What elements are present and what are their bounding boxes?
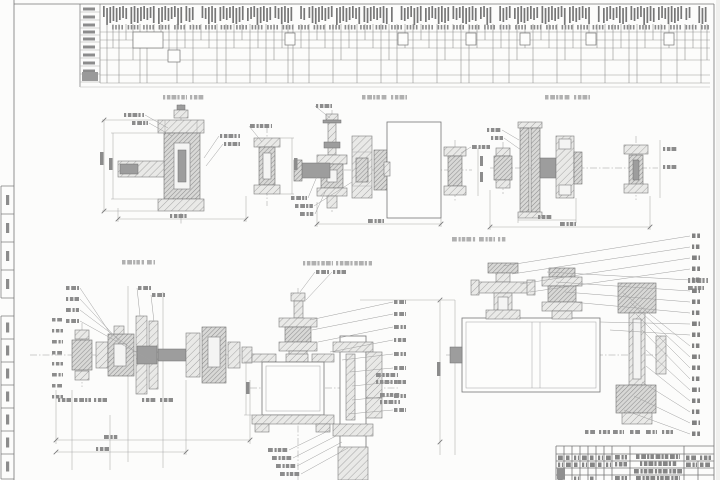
title-block-cell-text: [624, 462, 628, 467]
view-title-text: [199, 95, 204, 100]
micro-text-column: [518, 25, 520, 30]
micro-text-column: [106, 8, 108, 25]
micro-text-column: [410, 6, 412, 17]
micro-text-column: [252, 25, 254, 30]
annotation-text: [52, 340, 57, 344]
micro-text-column: [345, 25, 347, 30]
position-number: [697, 267, 700, 272]
micro-text-column: [214, 8, 216, 23]
callout-label: [310, 212, 314, 216]
micro-text-column: [441, 25, 443, 30]
callout-label: [404, 394, 406, 398]
micro-text-column: [143, 25, 145, 30]
annotation-text: [389, 400, 394, 404]
micro-text-column: [534, 25, 536, 30]
annotation-text: [52, 373, 57, 377]
title-block-cell-text: [558, 463, 560, 468]
page-edge: [716, 0, 720, 480]
view-title-text: [405, 95, 407, 100]
micro-text-column: [670, 25, 672, 30]
annotation-text: [142, 398, 144, 402]
position-number: [692, 366, 696, 371]
callout-label: [238, 142, 240, 146]
title-block-stamp-cell: [557, 469, 565, 480]
position-number: [692, 410, 694, 415]
callout-label: [330, 104, 332, 108]
annotation-text: [538, 215, 540, 219]
micro-text-column: [320, 25, 322, 30]
annotation-text: [542, 215, 546, 219]
view-title-text: [466, 237, 471, 242]
callout-label: [75, 297, 80, 301]
callout-label: [325, 104, 330, 108]
annotation-text: [380, 400, 382, 404]
micro-text-column: [116, 8, 118, 22]
view-title-text: [186, 95, 187, 100]
timing-node-box: [285, 33, 295, 45]
timing-node-box: [133, 32, 163, 48]
position-number: [699, 289, 701, 294]
title-block-cell-text: [602, 456, 603, 461]
micro-text-column: [134, 6, 136, 22]
position-number: [692, 311, 694, 316]
view-title-text: [336, 261, 338, 266]
title-block-cell-text: [636, 455, 640, 460]
micro-text-column: [668, 7, 670, 24]
micro-text-column: [354, 25, 356, 30]
view-title-text: [190, 95, 192, 100]
position-number: [699, 256, 701, 261]
micro-text-column: [226, 8, 228, 20]
callout-label: [401, 352, 403, 356]
micro-text-column: [278, 8, 280, 19]
title-block-cell-text: [625, 476, 627, 480]
micro-text-column: [462, 6, 464, 23]
title-block-cell-text: [641, 469, 643, 474]
micro-text-column: [401, 6, 403, 20]
annotation-text: [630, 430, 634, 434]
position-number: [692, 278, 694, 283]
micro-text-column: [506, 7, 508, 20]
micro-text-column: [342, 6, 344, 21]
micro-text-column: [577, 25, 579, 30]
micro-text-column: [586, 25, 588, 30]
margin-box-text: [6, 195, 9, 205]
micro-text-column: [422, 25, 424, 30]
title-block-cell-text: [615, 455, 620, 460]
micro-text-column: [515, 25, 517, 30]
gearbox-housing: [462, 318, 600, 392]
annotation-text: [100, 447, 104, 451]
micro-text-column: [705, 7, 707, 22]
title-block-cell-text: [610, 463, 611, 468]
view-title-text: [578, 95, 582, 100]
callout-label: [495, 136, 499, 140]
annotation-text: [179, 214, 184, 218]
micro-text-column: [545, 8, 547, 24]
annotation-text: [151, 398, 156, 402]
title-block-cell-text: [669, 462, 671, 467]
annotation-text: [574, 222, 576, 226]
micro-text-column: [475, 25, 477, 30]
position-number: [699, 388, 701, 393]
micro-text-column: [186, 6, 188, 21]
micro-text-column: [162, 25, 164, 30]
micro-text-column: [205, 8, 207, 19]
micro-text-column: [103, 6, 105, 17]
annotation-text: [599, 430, 601, 434]
annotation-text: [56, 329, 60, 333]
micro-text-column: [517, 7, 519, 24]
micro-text-column: [370, 7, 372, 21]
title-block-cell-text: [644, 469, 648, 474]
annotation-text: [88, 398, 91, 402]
annotation-text: [635, 430, 640, 434]
title-block-cell-text: [669, 469, 671, 474]
callout-label: [66, 297, 68, 301]
micro-text-column: [661, 6, 663, 18]
title-block-cell-text: [606, 456, 611, 461]
view-title-text: [459, 237, 461, 242]
micro-text-column: [658, 7, 660, 20]
position-number: [692, 256, 697, 261]
micro-text-column: [224, 25, 226, 30]
callout-label: [405, 366, 406, 370]
view-title-text: [317, 261, 319, 266]
micro-text-column: [530, 6, 532, 19]
micro-text-column: [355, 8, 357, 19]
micro-text-column: [702, 8, 704, 24]
annotation-text: [386, 373, 390, 377]
view-title-text: [462, 237, 466, 242]
micro-text-column: [385, 25, 387, 30]
micro-text-column: [404, 8, 406, 21]
position-number: [699, 355, 701, 360]
left-coupling: [72, 323, 92, 387]
micro-text-column: [214, 25, 216, 30]
micro-text-column: [147, 8, 149, 20]
callout-label: [76, 308, 79, 312]
title-block-cell-text: [693, 463, 695, 468]
micro-text-column: [335, 25, 337, 30]
micro-text-column: [602, 25, 604, 30]
callout-label: [157, 293, 162, 297]
title-block-cell-text: [578, 477, 579, 480]
micro-text-column: [230, 25, 232, 30]
title-block-cell-text: [686, 463, 691, 468]
annotation-text: [653, 430, 655, 434]
callout-label: [71, 319, 76, 323]
title-block-cell-text: [705, 463, 710, 468]
annotation-text: [52, 395, 54, 399]
callout-label: [290, 472, 294, 476]
micro-text-column: [598, 6, 600, 22]
micro-text-column: [284, 6, 286, 22]
micro-text-column: [575, 8, 577, 22]
title-block-cell-text: [696, 463, 697, 468]
position-number: [696, 245, 700, 250]
view-title-text: [172, 95, 177, 100]
callout-label: [405, 408, 406, 412]
title-block-cell-text: [625, 455, 627, 460]
position-number: [697, 399, 700, 404]
callout-label: [66, 286, 70, 290]
annotation-text: [98, 398, 102, 402]
micro-text-column: [617, 25, 619, 30]
micro-text-column: [599, 25, 601, 30]
annotation-text: [111, 435, 113, 439]
view-title-text: [479, 237, 484, 242]
micro-text-column: [453, 25, 455, 30]
title-block-cell-text: [646, 476, 650, 480]
row-label-text: [83, 31, 95, 34]
micro-text-column: [276, 25, 278, 30]
annotation-text: [646, 430, 651, 434]
callout-label: [142, 113, 144, 117]
title-block-cell-text: [649, 462, 654, 467]
title-block-cell-text: [654, 462, 656, 467]
annotation-text: [79, 398, 84, 402]
micro-text-column: [159, 25, 161, 30]
micro-text-column: [407, 25, 409, 30]
callout-label: [280, 472, 285, 476]
callout-label: [404, 325, 406, 329]
callout-label: [306, 204, 308, 208]
annotation-text: [61, 329, 64, 333]
micro-text-column: [583, 25, 585, 30]
dimension-text-vertical: [109, 158, 113, 170]
view-title-text: [133, 260, 135, 265]
position-number: [696, 410, 700, 415]
title-block-cell-text: [634, 469, 639, 474]
view-title-text: [307, 261, 311, 266]
micro-text-column: [122, 6, 124, 18]
view-title-text: [588, 95, 590, 100]
micro-text-column: [364, 6, 366, 22]
view-title-text: [312, 261, 317, 266]
view-title-text: [395, 95, 399, 100]
micro-text-column: [490, 25, 492, 30]
title-block-cell-text: [622, 455, 624, 460]
title-block-cell-text: [578, 456, 579, 461]
row-label-text: [83, 46, 95, 49]
micro-text-column: [671, 6, 673, 22]
title-block-cell-text: [622, 476, 624, 480]
annotation-text: [57, 384, 62, 388]
margin-box-text: [6, 279, 9, 289]
annotation-text: [672, 147, 677, 151]
dimension-text-vertical: [100, 152, 104, 165]
micro-text-column: [420, 6, 422, 21]
micro-text-column: [131, 7, 133, 24]
callout-label: [149, 286, 151, 290]
micro-text-column: [435, 8, 437, 19]
micro-text-column: [428, 7, 430, 20]
annotation-text: [375, 219, 377, 223]
title-block-cell-text: [574, 463, 578, 468]
annotation-text: [52, 351, 56, 355]
margin-box-text: [6, 346, 9, 356]
micro-text-column: [503, 8, 505, 22]
callout-label: [479, 145, 481, 149]
micro-text-column: [664, 8, 666, 19]
micro-text-column: [119, 7, 121, 20]
dimension-text-vertical: [294, 158, 298, 170]
margin-box-text: [6, 462, 9, 472]
micro-text-column: [239, 7, 241, 22]
annotation-text: [62, 373, 63, 377]
micro-text-column: [425, 8, 427, 22]
housing-outline: [387, 122, 441, 218]
micro-text-column: [177, 8, 179, 25]
title-block-cell-text: [673, 469, 677, 474]
view-title-text: [493, 237, 495, 242]
view-title-text: [550, 95, 555, 100]
micro-text-column: [239, 25, 241, 30]
view-title-text: [559, 95, 563, 100]
callout-label: [138, 113, 140, 117]
callout-label: [394, 338, 396, 342]
view-title-text: [321, 261, 325, 266]
micro-text-column: [438, 7, 440, 24]
timing-node-box: [520, 33, 530, 45]
micro-text-column: [483, 6, 485, 17]
view-title-text: [136, 260, 140, 265]
annotation-text: [169, 398, 174, 402]
view-title-text: [332, 261, 333, 266]
micro-text-column: [301, 25, 303, 30]
title-block-cell-text: [677, 469, 682, 474]
micro-text-column: [315, 8, 317, 24]
view-title-text: [574, 95, 576, 100]
micro-text-column: [640, 6, 642, 17]
timing-node-box: [586, 33, 596, 45]
callout-label: [394, 380, 396, 384]
view-title-text: [354, 261, 358, 266]
annotation-text: [663, 147, 665, 151]
micro-text-column: [391, 7, 393, 22]
annotation-text: [59, 340, 61, 344]
annotation-text: [567, 222, 569, 226]
micro-text-column: [624, 25, 626, 30]
micro-text-column: [472, 25, 474, 30]
position-number: [692, 300, 696, 305]
annotation-text: [560, 222, 565, 226]
callout-label: [307, 212, 309, 216]
title-block-cell-text: [562, 463, 563, 468]
callout-label: [77, 319, 79, 323]
title-block-cell-text: [660, 476, 664, 480]
micro-text-column: [263, 6, 265, 21]
annotation-text: [671, 430, 674, 434]
micro-text-column: [312, 6, 314, 23]
micro-text-column: [514, 8, 516, 19]
row-label-text: [83, 54, 95, 57]
micro-text-column: [639, 25, 641, 30]
micro-text-column: [253, 6, 255, 17]
annotation-text: [384, 400, 388, 404]
micro-text-column: [168, 8, 170, 21]
micro-text-column: [645, 25, 647, 30]
micro-text-column: [689, 25, 691, 30]
callout-label: [250, 124, 255, 128]
micro-text-column: [161, 7, 163, 22]
micro-text-column: [261, 25, 263, 30]
micro-text-column: [380, 7, 382, 18]
micro-text-column: [622, 8, 624, 24]
callout-label: [286, 456, 291, 460]
title-block-cell-text: [615, 476, 620, 480]
micro-text-column: [382, 25, 384, 30]
micro-text-column: [352, 6, 354, 18]
micro-text-column: [211, 6, 213, 22]
micro-text-column: [358, 7, 360, 24]
row-label-text: [83, 8, 95, 11]
callout-label: [333, 270, 335, 274]
callout-label: [399, 312, 404, 316]
annotation-text: [394, 400, 396, 404]
title-block-cell-text: [673, 462, 677, 467]
micro-text-column: [414, 8, 416, 25]
callout-label: [220, 134, 222, 138]
title-block-cell-text: [566, 463, 571, 468]
micro-text-column: [125, 8, 127, 19]
callout-label: [300, 204, 305, 208]
micro-text-column: [650, 6, 652, 21]
callout-label: [234, 134, 236, 138]
callout-label: [138, 286, 142, 290]
position-number: [697, 333, 700, 338]
view-title-text: [367, 95, 372, 100]
annotation-text: [96, 447, 98, 451]
micro-text-column: [520, 6, 522, 22]
micro-text-column: [593, 25, 595, 30]
micro-text-column: [425, 25, 427, 30]
annotation-text: [61, 395, 64, 399]
callout-label: [70, 297, 74, 301]
annotation-text: [662, 430, 664, 434]
annotation-text: [103, 398, 108, 402]
micro-text-column: [588, 7, 590, 24]
micro-text-column: [686, 25, 688, 30]
micro-text-column: [269, 7, 271, 20]
title-block-cell-text: [655, 469, 657, 474]
title-block-cell-text: [650, 476, 655, 480]
callout-label: [282, 448, 287, 452]
annotation-text: [52, 384, 56, 388]
timing-node-box: [398, 33, 408, 45]
micro-text-column: [701, 25, 703, 30]
title-block-cell-text: [670, 455, 675, 460]
callout-label: [146, 121, 148, 125]
position-number: [696, 344, 700, 349]
micro-text-column: [554, 8, 556, 21]
micro-text-column: [536, 7, 538, 18]
title-block-cell-text: [656, 455, 661, 460]
gear-housing: [262, 362, 324, 415]
annotation-text: [376, 373, 381, 377]
position-number: [692, 388, 697, 393]
margin-box-text: [6, 415, 9, 425]
view-title-text: [303, 261, 305, 266]
annotation-text: [390, 373, 395, 377]
title-block-cell-text: [590, 477, 594, 480]
margin-box-text: [6, 369, 9, 379]
micro-text-column: [298, 25, 300, 30]
annotation-text: [378, 219, 382, 223]
micro-text-column: [283, 25, 285, 30]
micro-text-column: [134, 25, 136, 30]
